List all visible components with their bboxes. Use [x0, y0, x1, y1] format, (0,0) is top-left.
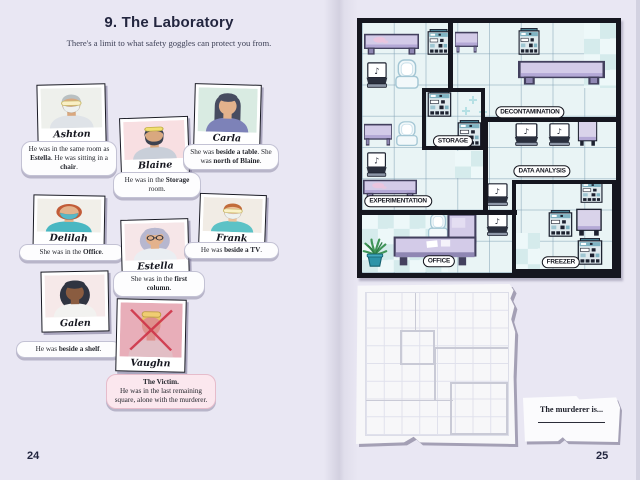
- laboratory-map: ♪♪♪♪♪♪STORAGEDECONTAMINATIONDATA ANALYSI…: [357, 18, 621, 278]
- map-item-chair: [394, 59, 420, 90]
- svg-text:♪: ♪: [557, 127, 562, 136]
- map-item-table: [518, 60, 605, 85]
- suspect-portrait-estella: [124, 222, 185, 261]
- murderer-prompt: The murderer is...: [523, 395, 620, 414]
- suspect-clue-frank: He was beside a TV.: [184, 242, 279, 259]
- svg-text:♪: ♪: [374, 66, 379, 76]
- room-label-data-analysis: DATA ANALYSIS: [513, 165, 570, 177]
- map-item-table: [364, 33, 419, 55]
- floor-tile-patch: [455, 151, 484, 179]
- room-label-freezer: FREEZER: [542, 256, 580, 268]
- room-border: [448, 23, 453, 90]
- suspect-portrait-blaine: [123, 120, 185, 160]
- suspect-clue-blaine: He was in the Storage room.: [113, 172, 201, 198]
- room-border: [434, 348, 436, 401]
- suspect-portrait-delilah: [37, 198, 102, 232]
- map-item-machine: [427, 29, 450, 55]
- room-border: [362, 210, 517, 215]
- room-border: [415, 293, 417, 331]
- map-item-laptop: ♪: [547, 123, 572, 147]
- map-item-plant: [362, 237, 388, 267]
- map-item-laptop: ♪: [485, 213, 510, 237]
- suspect-clue-ashton: He was in the same room as Estella. He w…: [21, 141, 117, 176]
- suspect-clue-vaughn: The Victim.He was in the last remaining …: [106, 374, 216, 409]
- suspect-portrait-frank: [203, 197, 263, 233]
- murderer-blank-line: [538, 422, 606, 423]
- suspect-card-frank: Frank: [198, 193, 267, 248]
- suspect-card-estella: Estella: [120, 218, 189, 276]
- suspect-card-galen: Galen: [40, 270, 109, 332]
- room-label-office: OFFICE: [423, 255, 455, 267]
- room-border: [450, 382, 508, 435]
- suspect-clue-delilah: She was in the Office.: [19, 244, 124, 261]
- svg-text:♪: ♪: [523, 126, 529, 135]
- suspect-name: Galen: [45, 316, 105, 331]
- suspect-portrait-vaughn: [120, 302, 183, 357]
- answer-grid: [356, 284, 516, 444]
- map-item-laptop: ♪: [513, 123, 540, 147]
- page-edge: [636, 0, 640, 480]
- puzzle-subtitle: There's a limit to what safety goggles c…: [0, 38, 338, 48]
- svg-text:♪: ♪: [495, 217, 500, 226]
- room-label-storage: STORAGE: [433, 135, 473, 147]
- room-border: [483, 117, 616, 122]
- suspect-clue-estella: She was in the first column.: [113, 271, 205, 297]
- suspect-name: Vaughn: [119, 356, 181, 371]
- puzzle-title: 9. The Laboratory: [0, 14, 338, 31]
- answer-grid-lines: [365, 292, 509, 436]
- room-border: [400, 330, 435, 365]
- svg-text:♪: ♪: [374, 156, 379, 165]
- room-label-decontamination: DECONTAMINATION: [495, 106, 564, 118]
- murderer-note: The murderer is...: [523, 395, 620, 443]
- map-item-chair: [395, 121, 419, 147]
- room-label-experimentation: EXPERIMENTATION: [364, 195, 431, 207]
- map-item-laptop: ♪: [365, 62, 389, 89]
- murderer-note-paper: The murderer is...: [523, 395, 620, 443]
- map-item-machine: [518, 28, 540, 55]
- map-item-laptop: ♪: [485, 183, 510, 207]
- book-spread: 9. The Laboratory There's a limit to wha…: [0, 0, 640, 480]
- svg-text:♪: ♪: [495, 187, 500, 196]
- map-item-laptop: ♪: [365, 152, 388, 178]
- room-border: [366, 400, 453, 402]
- page-number-left: 24: [27, 450, 39, 462]
- suspect-clue-galen: He was beside a shelf.: [16, 341, 121, 358]
- book-spine: [324, 0, 358, 480]
- map-item-cabinet: [577, 120, 598, 147]
- room-border: [483, 120, 488, 213]
- room-border: [434, 347, 508, 349]
- answer-grid-paper: [356, 284, 516, 444]
- suspect-portrait-galen: [45, 274, 106, 317]
- suspect-card-blaine: Blaine: [119, 116, 190, 175]
- suspect-clue-carla: She was beside a table. She was north of…: [183, 144, 279, 170]
- suspect-card-carla: Carla: [193, 83, 262, 148]
- suspect-card-vaughn: Vaughn: [115, 298, 187, 372]
- suspect-portrait-ashton: [40, 87, 102, 128]
- map-item-table: [364, 123, 392, 146]
- suspect-card-delilah: Delilah: [33, 194, 106, 247]
- map-item-table: [455, 31, 478, 53]
- suspect-portrait-carla: [198, 87, 258, 133]
- page-number-right: 25: [596, 450, 608, 462]
- suspect-card-ashton: Ashton: [36, 83, 106, 143]
